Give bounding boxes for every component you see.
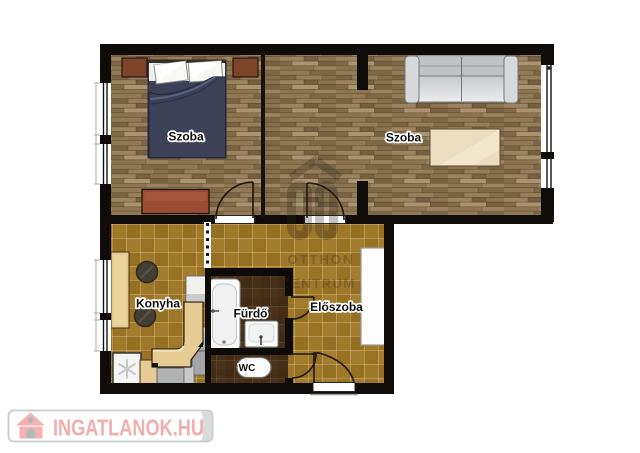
svg-text:CENTRUM: CENTRUM bbox=[280, 276, 356, 291]
svg-text:Szoba: Szoba bbox=[386, 131, 422, 145]
svg-text:WC: WC bbox=[239, 363, 256, 374]
svg-text:OTTHON: OTTHON bbox=[288, 252, 355, 267]
svg-text:INGATLANOK.HU: INGATLANOK.HU bbox=[53, 415, 204, 441]
svg-text:Konyha: Konyha bbox=[136, 297, 180, 311]
svg-text:Szoba: Szoba bbox=[168, 130, 204, 144]
svg-text:Előszoba: Előszoba bbox=[310, 300, 363, 314]
svg-text:Fürdő: Fürdő bbox=[234, 307, 268, 321]
